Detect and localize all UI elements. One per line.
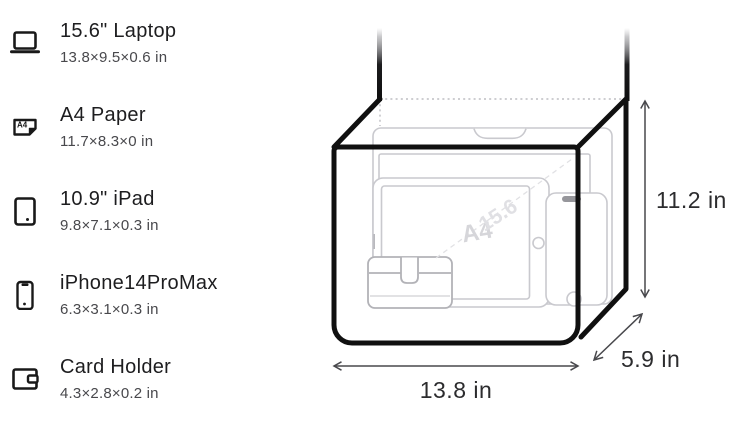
bag-dimension-diagram: A4 15.6 11.2 in 13.8 in 5 — [0, 0, 750, 426]
width-arrow — [334, 362, 578, 370]
height-arrow — [641, 101, 649, 297]
hidden-back-edges — [380, 99, 626, 126]
card-holder-drawing — [368, 257, 452, 308]
height-dimension-label: 11.2 in — [656, 187, 727, 213]
strap-right — [625, 28, 630, 101]
width-dimension-label: 13.8 in — [420, 377, 493, 403]
depth-dimension-label: 5.9 in — [621, 346, 680, 372]
strap-left — [377, 28, 382, 101]
